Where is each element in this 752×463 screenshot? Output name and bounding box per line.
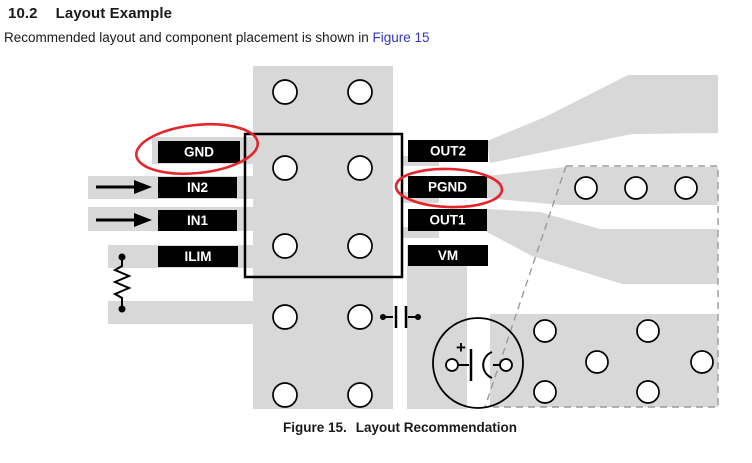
battery-symbol: +	[433, 318, 523, 408]
cap-right-node	[415, 314, 421, 320]
vm-trace	[407, 245, 467, 409]
center-pour	[253, 66, 393, 409]
via	[348, 234, 372, 258]
pin-label-in2: IN2	[187, 180, 208, 195]
via	[637, 381, 659, 403]
figure-caption: Figure 15.Layout Recommendation	[283, 420, 517, 435]
via	[534, 381, 556, 403]
via	[675, 177, 697, 199]
figure-caption-label: Figure 15.	[283, 420, 347, 435]
datasheet-page: 10.2Layout Example Recommended layout an…	[0, 0, 752, 463]
out2-trace	[487, 75, 718, 163]
pin-label-out2: OUT2	[430, 144, 466, 159]
via	[273, 80, 297, 104]
pin-label-ilim: ILIM	[185, 249, 212, 264]
via	[273, 156, 297, 180]
via	[691, 351, 713, 373]
layout-figure: + GND IN2 IN1 ILIM OUT2 PGND OUT1 VM	[0, 0, 752, 463]
via	[273, 383, 297, 407]
figure-caption-title: Layout Recommendation	[356, 420, 517, 435]
pin-label-out1: OUT1	[429, 213, 465, 228]
pin-label-in1: IN1	[187, 213, 209, 228]
via	[637, 320, 659, 342]
via	[586, 351, 608, 373]
battery-plus-sign: +	[456, 338, 466, 357]
via	[348, 80, 372, 104]
via	[348, 383, 372, 407]
via	[625, 177, 647, 199]
pin-label-gnd: GND	[184, 145, 214, 160]
battery-neg-terminal	[500, 359, 512, 371]
via	[273, 305, 297, 329]
battery-pos-terminal	[446, 359, 458, 371]
pin-label-vm: VM	[438, 248, 458, 263]
via	[348, 305, 372, 329]
via	[348, 156, 372, 180]
via	[534, 320, 556, 342]
input-arrows	[96, 180, 152, 227]
ilim-return-trace	[108, 301, 253, 324]
via	[273, 234, 297, 258]
pin-label-pgnd: PGND	[428, 180, 467, 195]
out1-trace	[487, 209, 718, 284]
via	[575, 177, 597, 199]
